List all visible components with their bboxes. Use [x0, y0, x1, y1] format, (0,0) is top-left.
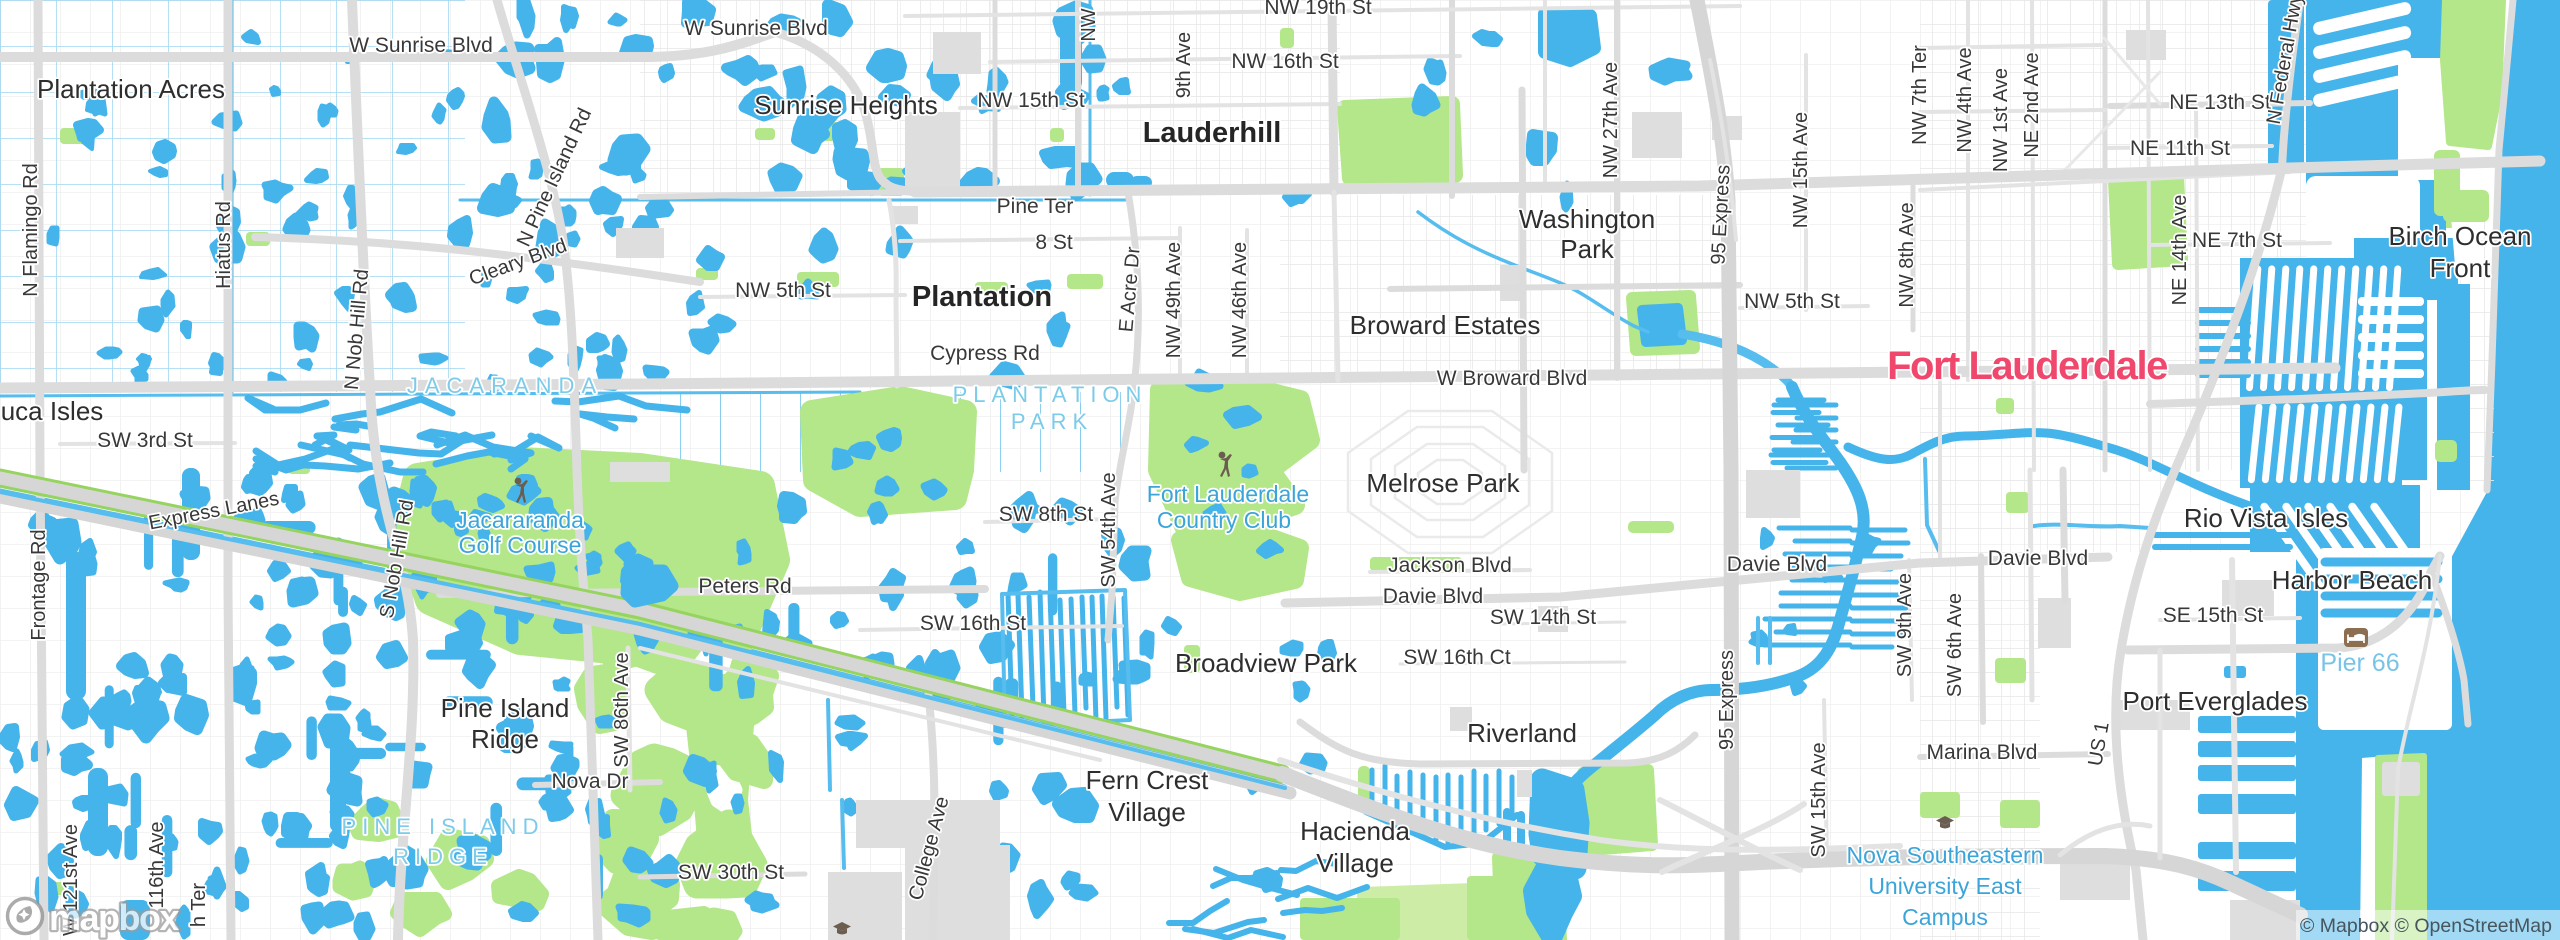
svg-text:Lauderhill: Lauderhill: [1143, 117, 1282, 149]
svg-text:SW 9th Ave: SW 9th Ave: [1894, 573, 1916, 677]
svg-text:SW 16th St: SW 16th St: [920, 612, 1026, 635]
svg-text:Melrose Park: Melrose Park: [1366, 468, 1520, 498]
svg-text:PINE ISLAND: PINE ISLAND: [342, 814, 545, 839]
svg-text:9th Ave: 9th Ave: [1173, 32, 1195, 98]
svg-text:Village: Village: [1108, 797, 1186, 827]
svg-text:Peters Rd: Peters Rd: [698, 575, 791, 598]
svg-text:116th Ave: 116th Ave: [146, 821, 168, 908]
svg-text:NE 14th Ave: NE 14th Ave: [2169, 195, 2191, 306]
svg-text:Jacararanda: Jacararanda: [456, 507, 584, 533]
svg-text:h Ter: h Ter: [188, 883, 210, 927]
svg-text:SW 6th Ave: SW 6th Ave: [1944, 593, 1966, 697]
svg-text:NW 27th Ave: NW 27th Ave: [1600, 62, 1622, 178]
svg-text:NW 5th St: NW 5th St: [1744, 290, 1840, 313]
svg-text:NW 4th Ave: NW 4th Ave: [1954, 47, 1976, 152]
svg-text:PARK: PARK: [1011, 409, 1093, 434]
svg-text:Hacienda: Hacienda: [1300, 816, 1410, 846]
svg-text:SW 3rd St: SW 3rd St: [97, 429, 193, 452]
svg-text:Broadview Park: Broadview Park: [1175, 648, 1358, 678]
svg-text:NW 16th St: NW 16th St: [1231, 50, 1339, 73]
svg-text:SW 8th St: SW 8th St: [999, 503, 1094, 526]
svg-text:NE 7th St: NE 7th St: [2192, 229, 2282, 252]
svg-text:Ridge: Ridge: [471, 724, 539, 754]
svg-text:SW 54th Ave: SW 54th Ave: [1098, 472, 1120, 587]
svg-text:NW 8th Ave: NW 8th Ave: [1896, 202, 1918, 307]
svg-text:95 Express: 95 Express: [1716, 650, 1738, 750]
svg-text:Cypress Rd: Cypress Rd: [930, 342, 1040, 365]
svg-text:Plantation: Plantation: [912, 281, 1052, 313]
svg-text:NE 11th St: NE 11th St: [2130, 137, 2230, 160]
svg-text:University East: University East: [1868, 873, 2022, 899]
svg-text:SW 15th Ave: SW 15th Ave: [1808, 742, 1830, 857]
svg-text:© Mapbox © OpenStreetMap: © Mapbox © OpenStreetMap: [2300, 915, 2552, 937]
svg-text:Pine Island: Pine Island: [441, 693, 570, 723]
svg-text:Birch Ocean: Birch Ocean: [2388, 221, 2531, 251]
svg-text:Nova Dr: Nova Dr: [551, 770, 628, 793]
svg-text:uca Isles: uca Isles: [1, 396, 104, 426]
svg-text:SW 86th Ave: SW 86th Ave: [611, 652, 633, 767]
svg-text:Pine Ter: Pine Ter: [997, 195, 1074, 218]
svg-text:SW 14th St: SW 14th St: [1490, 606, 1596, 629]
svg-text:Broward Estates: Broward Estates: [1350, 310, 1541, 340]
svg-text:RIDGE: RIDGE: [393, 844, 493, 869]
svg-text:Port Everglades: Port Everglades: [2123, 686, 2308, 716]
svg-text:Washington: Washington: [1519, 204, 1655, 234]
svg-text:NW 49th Ave: NW 49th Ave: [1163, 242, 1185, 358]
svg-text:mapbox: mapbox: [49, 897, 180, 938]
svg-text:Hiatus Rd: Hiatus Rd: [213, 201, 235, 289]
svg-text:NW 1st Ave: NW 1st Ave: [1990, 68, 2012, 172]
svg-text:Pier 66: Pier 66: [2320, 649, 2399, 677]
svg-text:JACARANDA: JACARANDA: [407, 373, 603, 398]
svg-text:Rio Vista Isles: Rio Vista Isles: [2184, 503, 2348, 533]
svg-text:NW 15th Ave: NW 15th Ave: [1790, 112, 1812, 228]
svg-text:NW 46th Ave: NW 46th Ave: [1229, 242, 1251, 358]
svg-text:Campus: Campus: [1902, 904, 1988, 930]
svg-text:Golf Course: Golf Course: [459, 532, 582, 558]
svg-text:Jackson Blvd: Jackson Blvd: [1388, 554, 1512, 577]
svg-text:Fort Lauderdale: Fort Lauderdale: [1887, 344, 2167, 388]
svg-text:W Broward Blvd: W Broward Blvd: [1437, 367, 1588, 390]
svg-text:Harbor Beach: Harbor Beach: [2272, 565, 2432, 595]
svg-text:Fort Lauderdale: Fort Lauderdale: [1147, 481, 1309, 507]
svg-text:Village: Village: [1316, 848, 1394, 878]
svg-text:Davie Blvd: Davie Blvd: [1383, 585, 1483, 608]
svg-text:Davie Blvd: Davie Blvd: [1988, 547, 2088, 570]
svg-text:Country Club: Country Club: [1157, 507, 1291, 533]
svg-text:SW 30th St: SW 30th St: [678, 861, 784, 884]
svg-text:8 St: 8 St: [1035, 231, 1073, 254]
svg-text:W Sunrise Blvd: W Sunrise Blvd: [349, 34, 493, 57]
svg-text:PLANTATION: PLANTATION: [953, 382, 1148, 407]
svg-text:Riverland: Riverland: [1467, 718, 1577, 748]
svg-text:NW 5th St: NW 5th St: [735, 279, 831, 302]
svg-text:Sunrise Heights: Sunrise Heights: [754, 90, 938, 120]
svg-text:Nova Southeastern: Nova Southeastern: [1847, 842, 2044, 868]
svg-text:Fern Crest: Fern Crest: [1086, 765, 1210, 795]
svg-text:NW 7th Ter: NW 7th Ter: [1909, 45, 1931, 145]
svg-text:N Flamingo Rd: N Flamingo Rd: [20, 163, 42, 296]
svg-text:SW 16th Ct: SW 16th Ct: [1403, 646, 1511, 669]
svg-text:W Sunrise Blvd: W Sunrise Blvd: [684, 17, 828, 40]
svg-text:Plantation Acres: Plantation Acres: [37, 74, 225, 104]
svg-text:Frontage Rd: Frontage Rd: [28, 529, 50, 640]
svg-text:Davie Blvd: Davie Blvd: [1727, 553, 1827, 576]
svg-text:NE 13th St: NE 13th St: [2169, 91, 2271, 114]
svg-text:Front: Front: [2430, 253, 2491, 283]
svg-text:NW 19th St: NW 19th St: [1264, 0, 1372, 19]
svg-text:NE 2nd Ave: NE 2nd Ave: [2021, 52, 2043, 157]
svg-text:Marina Blvd: Marina Blvd: [1927, 741, 2038, 764]
svg-text:Park: Park: [1560, 234, 1614, 264]
svg-text:NW 15th St: NW 15th St: [977, 89, 1085, 112]
svg-text:SE 15th St: SE 15th St: [2163, 604, 2264, 627]
svg-text:NW: NW: [1078, 8, 1100, 41]
